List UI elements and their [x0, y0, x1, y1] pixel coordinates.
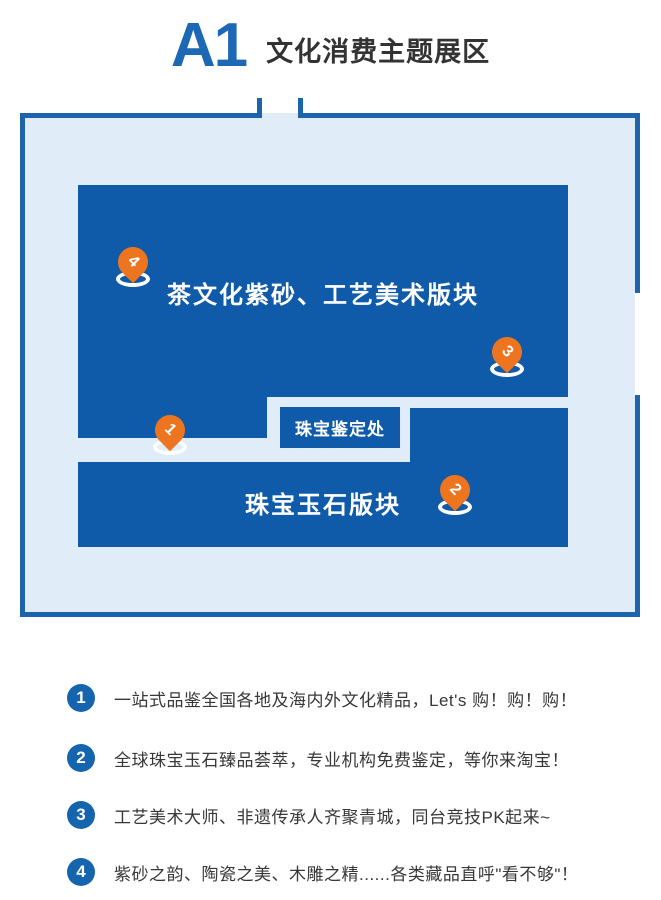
zone-code: A1 [171, 14, 246, 78]
legend-number-badge: 4 [67, 858, 95, 886]
jewelry-appraisal-office: 珠宝鉴定处 [280, 407, 400, 448]
legend-item-3: 3 工艺美术大师、非遗传承人齐聚青城，同台竞技PK起来~ [67, 801, 551, 829]
legend-item-text: 全球珠宝玉石臻品荟萃，专业机构免费鉴定，等你来淘宝！ [114, 746, 569, 771]
legend-item-4: 4 紫砂之韵、陶瓷之美、木雕之精......各类藏品直呼"看不够"！ [67, 858, 578, 886]
wall-right-lower-segment [635, 395, 640, 617]
wall-right-upper-segment [635, 113, 640, 293]
legend-number-badge: 2 [67, 744, 95, 772]
wall-bottom [20, 612, 640, 617]
legend-number-badge: 1 [67, 684, 95, 712]
legend-number-badge: 3 [67, 801, 95, 829]
wall-left [20, 113, 25, 617]
entrance-post-left [257, 98, 262, 118]
legend-item-2: 2 全球珠宝玉石臻品荟萃，专业机构免费鉴定，等你来淘宝！ [67, 744, 569, 772]
legend-item-text: 一站式品鉴全国各地及海内外文化精品，Let's 购！购！购！ [114, 686, 577, 711]
jewelry-appraisal-office-label: 珠宝鉴定处 [295, 415, 385, 440]
tea-culture-crafts-region-extension [78, 185, 267, 438]
floor-plan: 茶文化紫砂、工艺美术版块 珠宝玉石版块 珠宝鉴定处 1 2 3 4 [20, 113, 640, 617]
wall-top-right-segment [298, 113, 640, 118]
location-pin-3: 3 [492, 337, 522, 367]
tea-culture-crafts-label: 茶文化紫砂、工艺美术版块 [78, 283, 568, 308]
legend-item-text: 工艺美术大师、非遗传承人齐聚青城，同台竞技PK起来~ [114, 803, 551, 828]
wall-top-left-segment [20, 113, 262, 118]
page-title: 文化消费主题展区 [266, 30, 490, 69]
location-pin-1: 1 [155, 415, 185, 445]
entrance-post-right [298, 98, 303, 118]
jewelry-jade-label: 珠宝玉石版块 [78, 493, 568, 518]
legend-item-text: 紫砂之韵、陶瓷之美、木雕之精......各类藏品直呼"看不够"！ [114, 860, 578, 885]
location-pin-4: 4 [118, 247, 148, 277]
page-header: A1 文化消费主题展区 [0, 14, 661, 78]
location-pin-2: 2 [440, 475, 470, 505]
legend-item-1: 1 一站式品鉴全国各地及海内外文化精品，Let's 购！购！购！ [67, 684, 577, 712]
